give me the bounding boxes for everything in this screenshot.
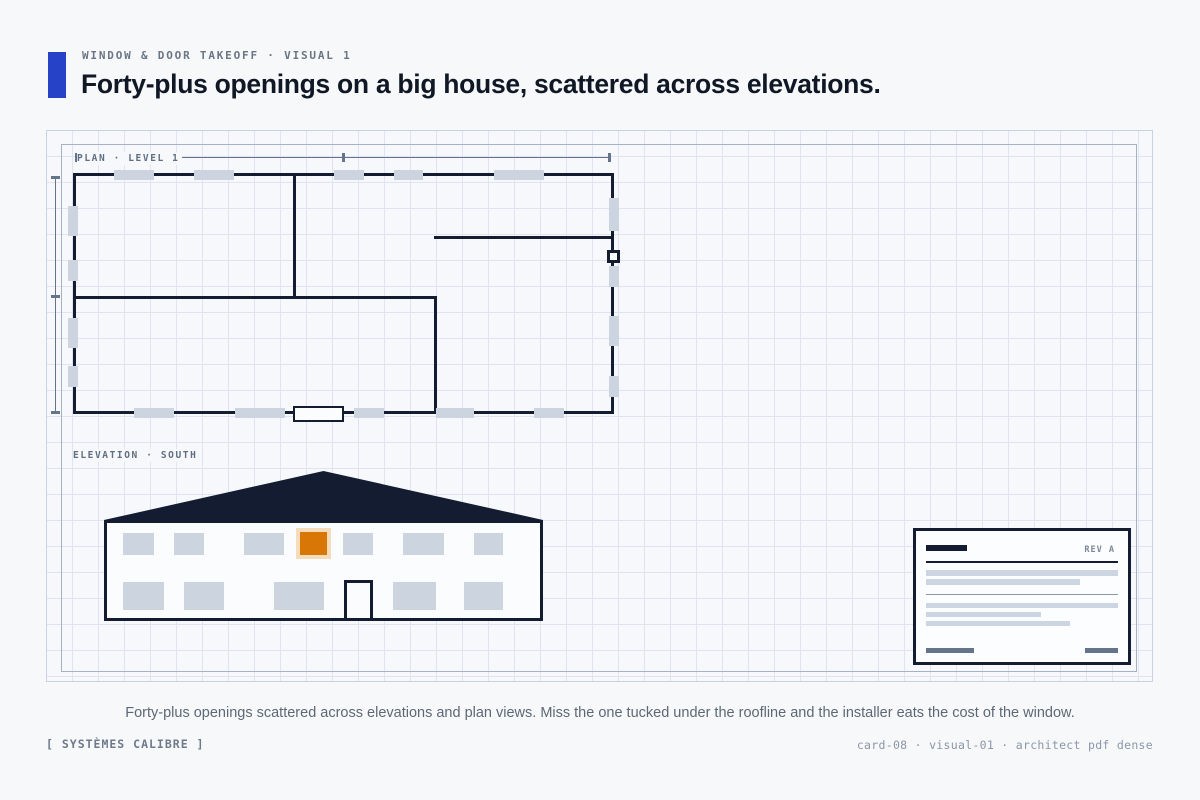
blueprint-panel: PLAN · LEVEL 1 ELEVATION · SOUTH REV A [46,130,1153,682]
titleblock: REV A [913,528,1131,665]
titleblock-signature-bars-layer [913,528,1131,665]
eyebrow-label: WINDOW & DOOR TAKEOFF · VISUAL 1 [82,49,352,62]
page-title: Forty-plus openings on a big house, scat… [81,69,881,100]
elevation-door [344,580,373,621]
titleblock-signature-bar [1085,648,1118,653]
footer-brand: [ SYSTÈMES CALIBRE ] [46,737,204,751]
footer-meta: card-08 · visual-01 · architect pdf dens… [857,738,1153,752]
titleblock-signature-bar [926,648,974,653]
caption: Forty-plus openings scattered across ele… [0,705,1200,721]
accent-bar [48,52,66,98]
